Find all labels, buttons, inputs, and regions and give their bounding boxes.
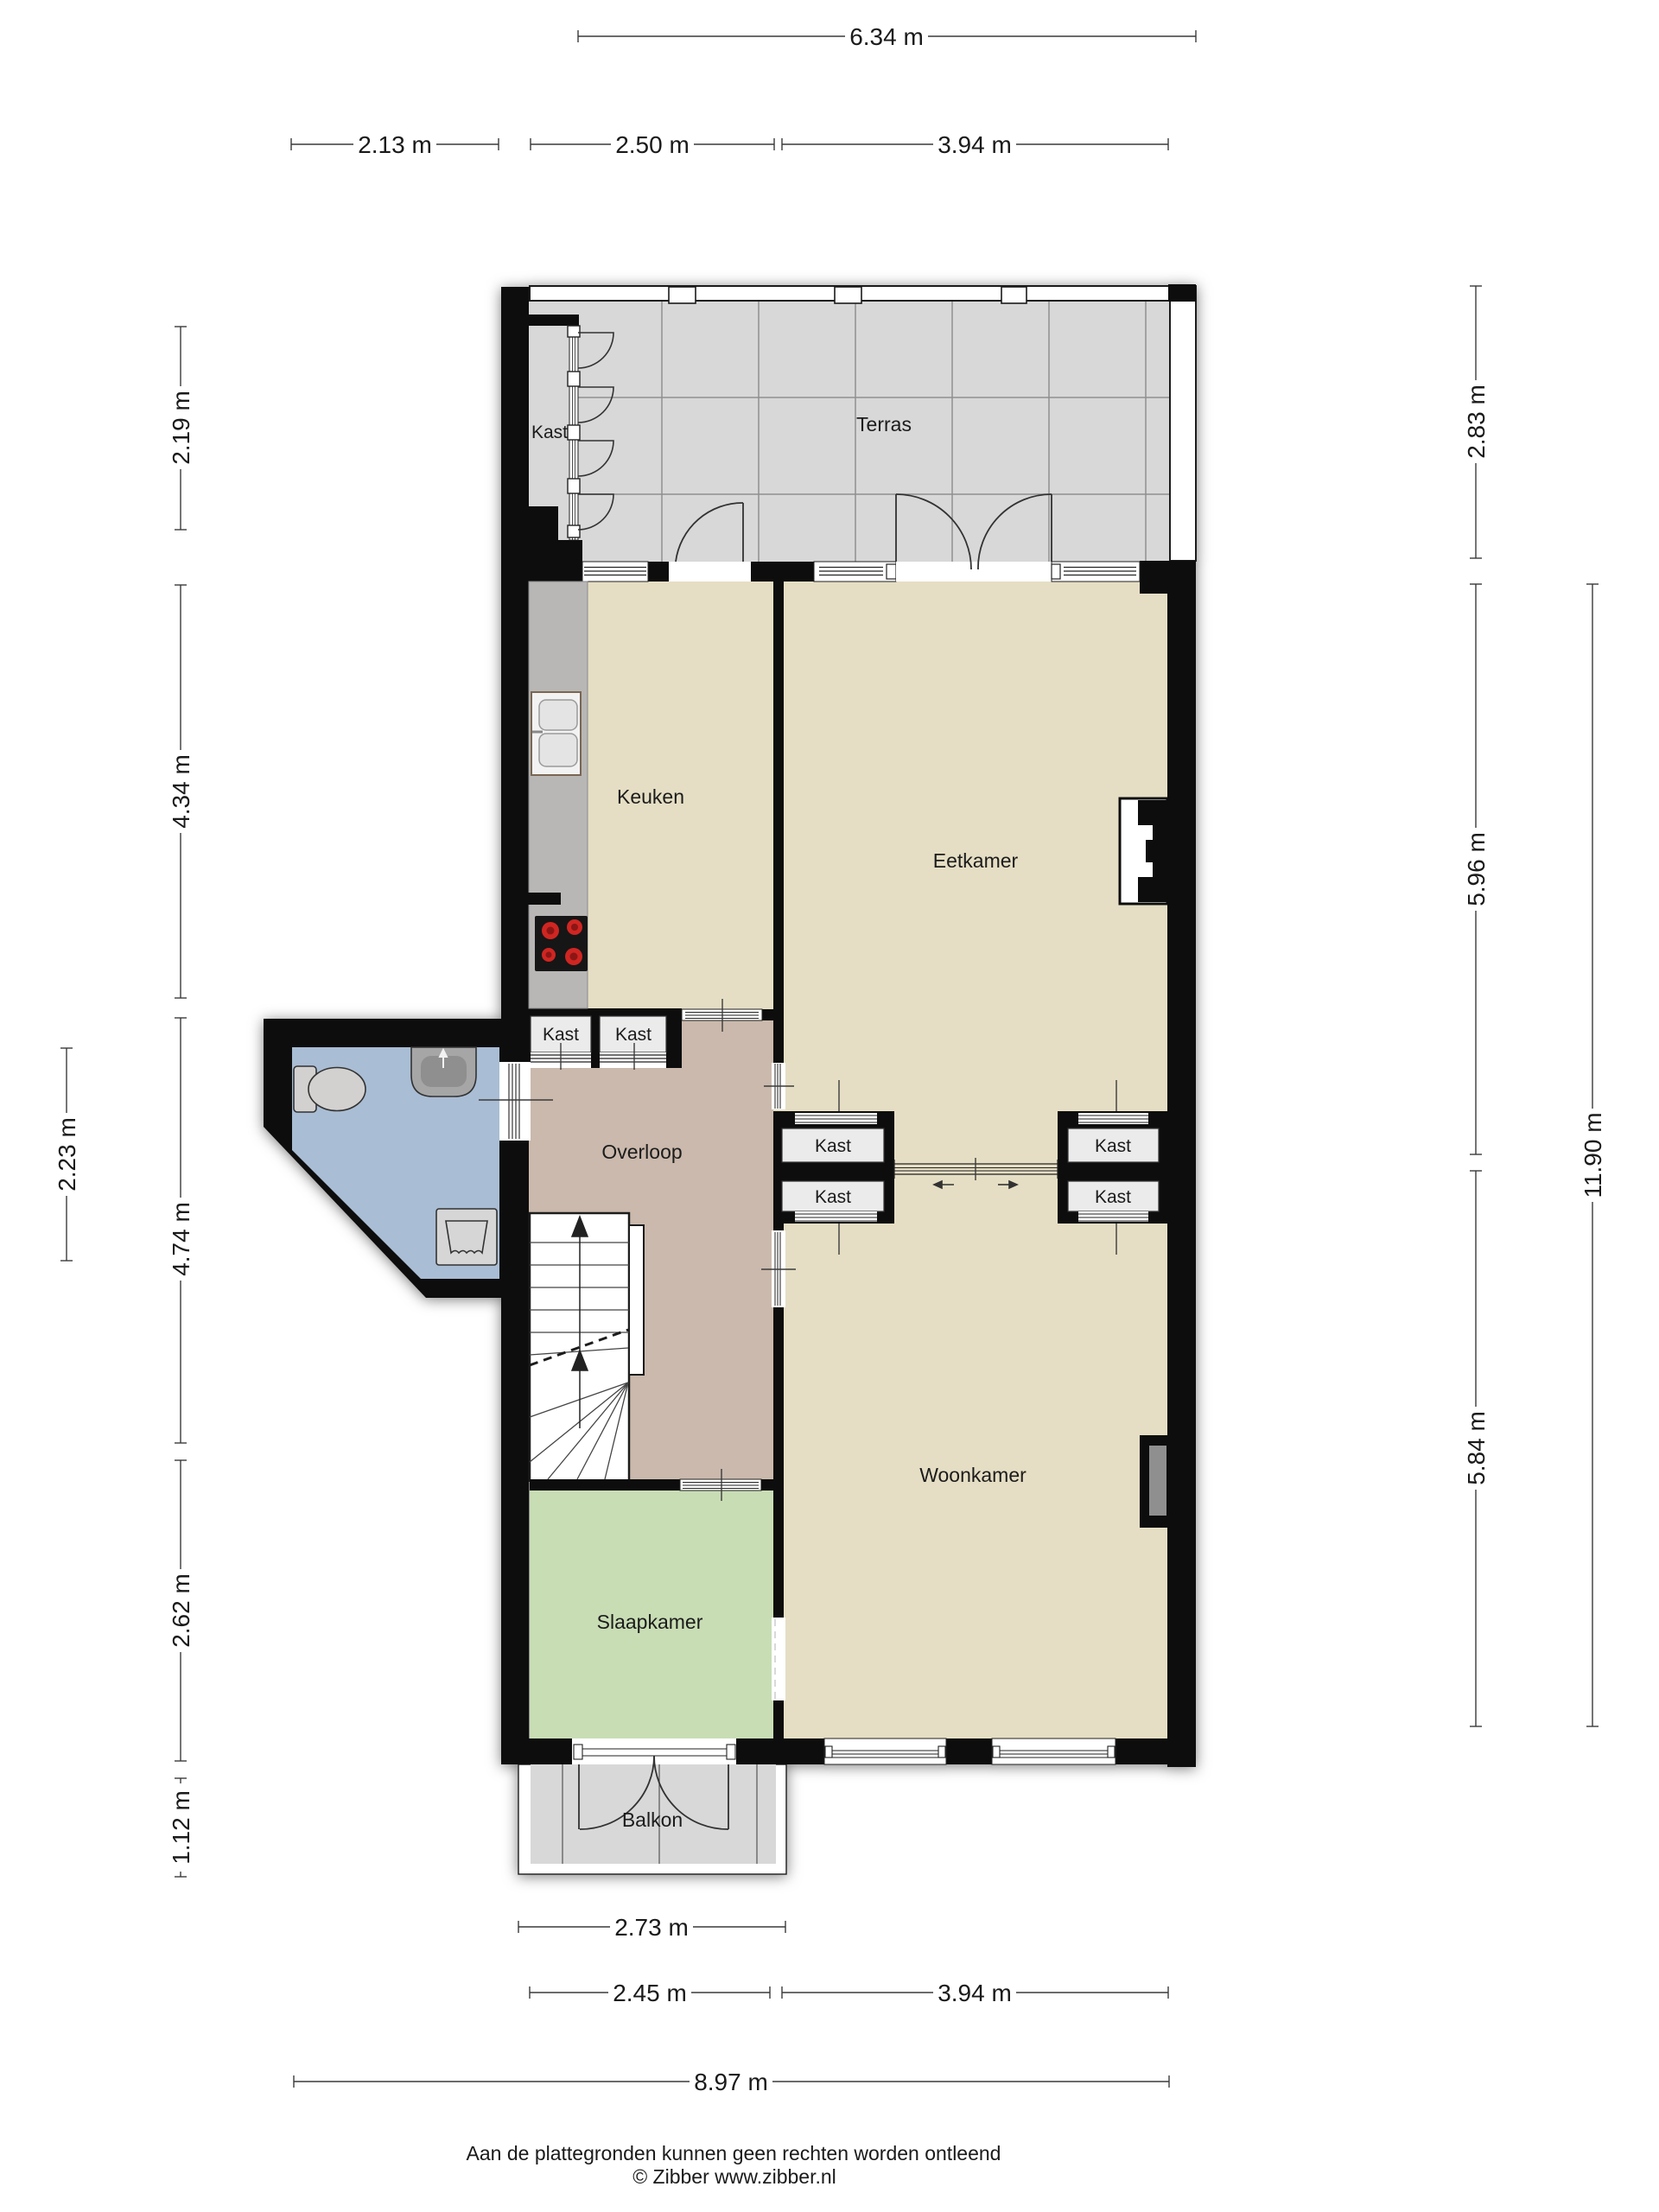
svg-text:Eetkamer: Eetkamer xyxy=(933,849,1019,872)
svg-text:Kast: Kast xyxy=(615,1025,652,1045)
svg-text:Kast: Kast xyxy=(1095,1136,1131,1156)
svg-text:Kast: Kast xyxy=(815,1136,851,1156)
svg-text:6.34 m: 6.34 m xyxy=(849,23,924,50)
svg-text:Aan de plattegronden kunnen ge: Aan de plattegronden kunnen geen rechten… xyxy=(467,2142,1001,2164)
svg-text:2.13 m: 2.13 m xyxy=(358,131,432,158)
svg-text:5.84 m: 5.84 m xyxy=(1463,1411,1490,1485)
svg-text:Overloop: Overloop xyxy=(601,1141,682,1163)
svg-text:2.45 m: 2.45 m xyxy=(613,1980,687,2006)
svg-text:2.19 m: 2.19 m xyxy=(168,391,194,465)
svg-text:1.12 m: 1.12 m xyxy=(168,1790,194,1865)
svg-text:Kast: Kast xyxy=(531,423,568,442)
svg-text:Keuken: Keuken xyxy=(617,785,684,808)
svg-text:2.23 m: 2.23 m xyxy=(54,1117,80,1192)
svg-text:4.74 m: 4.74 m xyxy=(168,1202,194,1276)
svg-text:3.94 m: 3.94 m xyxy=(938,131,1012,158)
svg-text:2.73 m: 2.73 m xyxy=(614,1914,689,1941)
svg-text:© Zibber www.zibber.nl: © Zibber www.zibber.nl xyxy=(632,2165,836,2188)
svg-text:2.50 m: 2.50 m xyxy=(615,131,690,158)
svg-text:2.62 m: 2.62 m xyxy=(168,1573,194,1648)
svg-text:Kast: Kast xyxy=(1095,1187,1131,1207)
svg-text:4.34 m: 4.34 m xyxy=(168,754,194,829)
svg-text:11.90 m: 11.90 m xyxy=(1580,1112,1606,1198)
svg-text:Balkon: Balkon xyxy=(622,1808,683,1831)
svg-text:Terras: Terras xyxy=(856,413,912,435)
svg-text:Kast: Kast xyxy=(543,1025,579,1045)
svg-text:Woonkamer: Woonkamer xyxy=(919,1464,1027,1486)
svg-text:Kast: Kast xyxy=(815,1187,851,1207)
svg-text:5.96 m: 5.96 m xyxy=(1463,832,1490,906)
svg-text:2.83 m: 2.83 m xyxy=(1463,385,1490,459)
svg-text:Slaapkamer: Slaapkamer xyxy=(597,1611,703,1633)
svg-text:3.94 m: 3.94 m xyxy=(938,1980,1012,2006)
svg-text:8.97 m: 8.97 m xyxy=(694,2069,768,2095)
